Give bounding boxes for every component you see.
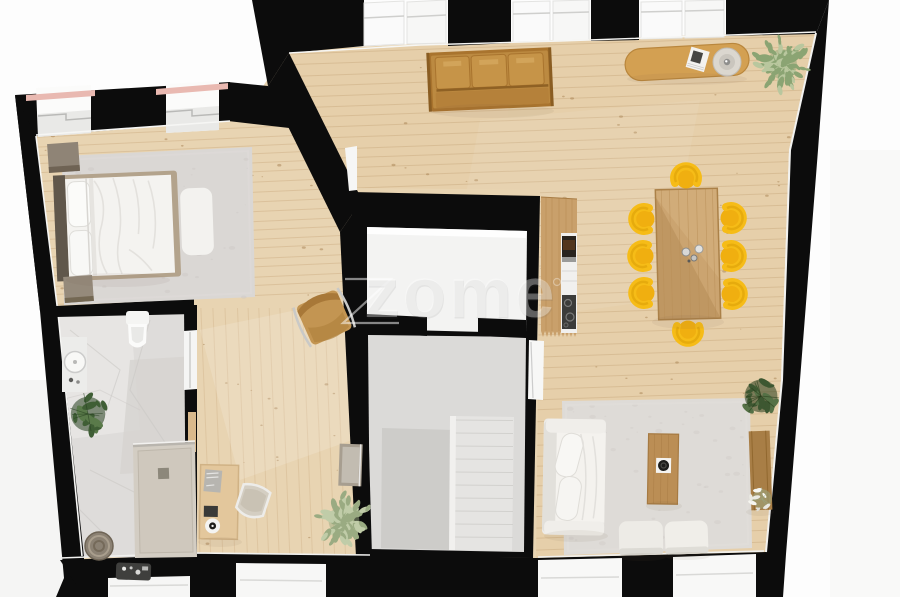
svg-text:zome: zome (364, 254, 558, 333)
